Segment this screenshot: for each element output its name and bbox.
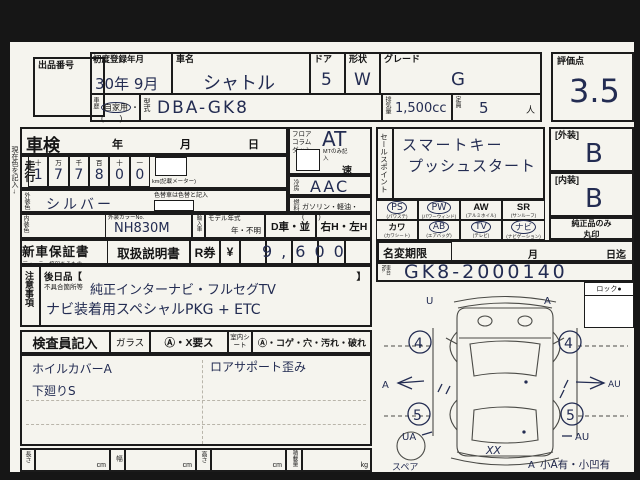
margin-note: 現在色を記入→ <box>11 146 18 195</box>
import-car-label: 輸入車 <box>195 215 201 232</box>
height-value-cell: cm <box>211 448 286 472</box>
digit-header: 千 <box>76 160 83 167</box>
fuel-value: ガソリン・軽油・( ) <box>302 202 370 222</box>
auction-number-label: 出品番号 <box>38 61 74 71</box>
mt-note: MTのみ記入 <box>323 149 349 162</box>
ext-color-row: 外装色 シルバー 色替車は色替と記入 <box>20 189 288 213</box>
shape-label: 形状 <box>349 55 367 65</box>
manual-cell: 取扱説明書 <box>107 239 190 265</box>
mark-left-side: A <box>382 380 389 391</box>
defect-label: 不具合箇所等 <box>44 284 83 291</box>
r-ticket-cell: R券 <box>190 239 220 265</box>
shaken-day-label: 日 <box>248 136 259 152</box>
equip-cell-sr: SR (サンルーフ) <box>502 200 545 220</box>
interior-rating-label: [内装] <box>555 176 579 186</box>
name-change-month: 月 <box>528 246 538 261</box>
load-label: 積載量 <box>291 450 297 467</box>
load-label-cell: 積載量 <box>286 448 302 472</box>
later-goods-close: 】 <box>356 269 366 283</box>
shaken-year-label: 年 <box>112 136 123 152</box>
yen-cell: ¥ <box>220 239 240 265</box>
digit-value: 0 <box>115 167 124 183</box>
equip-cell-ps: PS (パワステ) <box>376 200 418 220</box>
lock-header: ロック● <box>585 283 633 296</box>
lock-label: ロック● <box>596 284 621 294</box>
color-no-value: NH830M <box>114 221 170 236</box>
sales-point-label: セールスポイント <box>380 133 388 193</box>
name-change-label-cell: 名変期限 <box>378 242 452 261</box>
first-registration-label: 初度登録年月 <box>93 55 144 64</box>
length-label: 長さ <box>24 451 30 463</box>
mileage-grid: 十 1 万 7 千 7 百 8 十 0 一 0 <box>28 156 150 187</box>
digit-header: 十 <box>116 160 123 167</box>
equip-code-kawa: カワ <box>388 221 405 233</box>
capacity-cell: 定員 5 人 <box>452 94 542 122</box>
wheel-mark-fl: 4 <box>414 336 423 352</box>
seat-marks-cell: Ⓐ・コゲ・穴・汚れ・破れ <box>252 330 372 354</box>
digit-header: 万 <box>55 160 62 167</box>
mark-rear-bumper: A <box>528 460 535 471</box>
width-label: 幅 <box>114 455 121 462</box>
ac-value: AAC <box>310 177 349 196</box>
height-unit: cm <box>273 462 282 469</box>
mark-front-right: A <box>544 296 551 307</box>
capacity-unit: 人 <box>526 103 535 116</box>
capacity-label: 定員 <box>454 96 460 108</box>
length-label-cell: 長さ <box>20 448 35 472</box>
shape-value: W <box>354 70 371 90</box>
seat-cell: 室内シート <box>228 330 252 354</box>
equip-sub-kawa: (カワシート) <box>384 233 410 239</box>
equip-sub-pw: (パワーウィンド) <box>422 214 457 220</box>
transmission-value: AT <box>322 127 346 151</box>
equip-sub-sr: (サンルーフ) <box>511 213 536 219</box>
ext-color-value: シルバー <box>46 194 114 214</box>
shape-cell: 形状 W <box>345 52 380 94</box>
equip-cell-ab: AB (エアバッグ) <box>418 220 460 240</box>
exterior-rating-box: [外装] B <box>549 127 634 172</box>
equip-code-aw: AW <box>473 202 488 213</box>
mt-speed-box <box>296 149 320 171</box>
equip-cell-pw: PW (パワーウィンド) <box>418 200 460 220</box>
equip-code-sr: SR <box>517 202 530 213</box>
digit-value: 1 <box>34 167 43 183</box>
lock-box: ロック● <box>584 282 634 328</box>
mileage-digit-cell: 万 7 <box>48 156 68 187</box>
equip-sub-ps: (パワステ) <box>387 214 408 220</box>
car-name-cell: 車名 シャトル <box>172 52 310 94</box>
model-year-cell: モデル年式 年・不明 <box>205 213 265 239</box>
color-change-box <box>154 200 194 211</box>
price-value: 9,600 <box>262 242 353 261</box>
digit-header: 十 <box>35 160 42 167</box>
name-change-label: 名変期限 <box>383 245 427 261</box>
history-cell: 車歴 自家用・( ) <box>90 94 140 122</box>
load-unit: kg <box>361 462 368 469</box>
digit-value: 7 <box>74 167 83 183</box>
grade-label: グレード <box>384 55 420 65</box>
sales-line1: スマートキー <box>402 134 504 155</box>
model-year-value: 年・不明 <box>231 225 261 236</box>
ruled-line <box>26 424 366 425</box>
import-car-cell: 輸入車 <box>192 213 205 239</box>
mark-bottom-center: XX <box>485 444 502 457</box>
shaken-month-label: 月 <box>180 136 191 152</box>
width-unit: cm <box>183 462 192 469</box>
displacement-label: 排気量 <box>384 96 390 114</box>
history-label: 車歴 <box>92 97 98 109</box>
equip-cell-navi: ナビ (ナビゲーション) <box>502 220 545 240</box>
mark-rear-left: UA <box>402 432 416 443</box>
interior-rating-box: [内装] B <box>549 172 634 217</box>
door-label: ドア <box>314 55 332 65</box>
digit-value: 7 <box>54 167 63 183</box>
name-change-until: 日迄 <box>606 246 626 261</box>
ruled-line <box>26 400 366 401</box>
chassis-row: 車台No. GK8-2000140 <box>376 262 634 282</box>
mileage-blank-box <box>155 157 187 176</box>
auction-sheet-photo: 現在色を記入→ 出品番号 初度登録年月 30年 9月 車名 シャトル ドア 5 … <box>0 0 640 480</box>
equip-sub-ab: (エアバッグ) <box>426 233 451 239</box>
diagram-summary: 小A有・小凹有 <box>540 457 610 472</box>
sales-divider <box>392 129 394 199</box>
digit-header: 百 <box>96 160 103 167</box>
exterior-rating-label: [外装] <box>555 131 579 141</box>
history-value: 自家用 <box>101 102 131 113</box>
wheel-mark-fr: 4 <box>564 336 573 352</box>
manual-label: 取扱説明書 <box>117 243 180 262</box>
mileage-unit-note: km(記載メーター) <box>152 179 196 185</box>
fuel-box: 燃料 ガソリン・軽油・( ) <box>288 196 372 213</box>
width-value-cell: cm <box>125 448 196 472</box>
grade-cell: グレード G <box>380 52 542 94</box>
glass-label: ガラス <box>116 335 144 349</box>
sales-line2: プッシュスタート <box>408 155 536 176</box>
glass-marks: Ⓐ・X要ス <box>164 335 213 350</box>
spare-label: スペア <box>392 463 418 472</box>
digit-header: 一 <box>137 160 144 167</box>
genuine-note-line1: 純正品のみ <box>572 218 612 229</box>
equip-cell-tv: TV (テレビ) <box>460 220 502 240</box>
transmission-box: フロア コラム ダッシュ AT MTのみ記入 速 <box>288 127 372 175</box>
chassis-value: GK8-2000140 <box>404 261 568 283</box>
mileage-digit-cell: 千 7 <box>69 156 89 187</box>
notes-label: 注意事項 <box>24 271 33 307</box>
height-label-cell: 高さ <box>196 448 211 472</box>
door-cell: ドア 5 <box>310 52 345 94</box>
notes-row: 注意事項 後日品【 】 不具合箇所等 純正インターナビ・フルセグTV ナビ装着用… <box>20 265 372 327</box>
glass-marks-cell: Ⓐ・X要ス <box>150 330 228 354</box>
warranty-booklet-label: 新車保証書 <box>22 241 107 260</box>
model-code-label: 型式 <box>143 98 150 112</box>
first-registration-value: 30年 9月 <box>95 73 158 94</box>
exterior-rating-value: B <box>585 139 603 169</box>
wheel-mark-rr: 5 <box>566 408 575 424</box>
length-value-cell: cm <box>35 448 110 472</box>
equip-sub-tv: (テレビ) <box>473 233 490 239</box>
floor-label: フロア <box>292 131 312 138</box>
inspector-note1: ホイルカバーA <box>32 360 112 377</box>
car-name-label: 車名 <box>176 55 194 65</box>
history-value-wrap: 自家用・( ) <box>101 102 139 124</box>
load-value-cell: kg <box>302 448 372 472</box>
warranty-booklet-cell: 新車保証書 ディーラー捺印あるもの <box>22 241 107 268</box>
model-code-cell: 型式 DBA-GK8 <box>140 94 382 122</box>
inspector-notes-area: ホイルカバーA 下廻りS ロアサポート歪み <box>20 354 372 446</box>
grade-value: G <box>451 69 465 90</box>
yen-label: ¥ <box>227 245 234 259</box>
capacity-value: 5 <box>479 99 489 117</box>
int-color-label: 内装色 <box>22 215 28 233</box>
score-value: 3.5 <box>569 72 620 110</box>
chassis-label: 車台No. <box>380 265 390 280</box>
notes-line1: 純正インターナビ・フルセグTV <box>90 279 276 298</box>
mark-rear-right: AU <box>575 432 589 443</box>
score-label: 評価点 <box>557 57 584 67</box>
genuine-note-line2: 丸印 <box>584 229 600 240</box>
genuine-parts-box: 純正品のみ 丸印 <box>549 217 634 240</box>
equip-cell-kawa: カワ (カワシート) <box>376 220 418 240</box>
car-name-value: シャトル <box>203 69 275 95</box>
inspector-title-cell: 検査員記入 <box>20 330 110 354</box>
color-no-cell: 外装カラーNo. NH830M <box>105 213 192 239</box>
shaken-label: 車検 <box>26 131 60 156</box>
inspector-title: 検査員記入 <box>32 333 97 352</box>
mileage-digit-cell: 十 1 <box>28 156 48 187</box>
width-label-cell: 幅 <box>110 448 125 472</box>
inspector-note3: ロアサポート歪み <box>210 358 306 375</box>
mileage-digit-cell: 百 8 <box>89 156 109 187</box>
sales-point-box: セールスポイント スマートキー プッシュスタート <box>376 127 545 200</box>
height-label: 高さ <box>200 451 206 463</box>
glass-cell: ガラス <box>110 330 150 354</box>
seat-marks: Ⓐ・コゲ・穴・汚れ・破れ <box>258 336 366 349</box>
interior-rating-value: B <box>585 184 603 214</box>
equip-code-pw: PW <box>427 201 450 214</box>
ext-color-label: 外装色 <box>23 192 29 210</box>
mileage-digit-cell: 十 0 <box>109 156 129 187</box>
length-unit: cm <box>97 462 106 469</box>
notes-divider <box>39 267 41 326</box>
equip-code-ab: AB <box>429 221 449 233</box>
digit-value: 8 <box>95 167 104 183</box>
digit-value: 0 <box>135 167 144 183</box>
color-change-note: 色替車は色替と記入 <box>154 193 208 200</box>
column-label: コラム <box>292 139 311 146</box>
equip-sub-aw: (アルミホイル) <box>466 213 496 219</box>
displacement-cell: 排気量 1,500cc <box>382 94 452 122</box>
model-year-label: モデル年式 <box>208 215 241 222</box>
inspector-note2: 下廻りS <box>32 382 76 399</box>
fuel-label: 燃料 <box>292 199 298 211</box>
notes-line2: ナビ装着用スペシャルPKG + ETC <box>46 299 260 319</box>
seat-label: 室内シート <box>229 334 251 350</box>
wheel-mark-rl: 5 <box>413 408 422 424</box>
later-goods-label: 後日品【 <box>44 269 82 283</box>
ac-label: 冷房 <box>292 179 298 191</box>
mark-right-side: AU <box>608 380 621 390</box>
ac-box: 冷房 AAC <box>288 175 372 196</box>
ruled-divider <box>202 360 203 444</box>
equip-cell-aw: AW (アルミホイル) <box>460 200 502 220</box>
equip-code-tv: TV <box>471 221 491 233</box>
displacement-value: 1,500cc <box>395 101 447 116</box>
equip-code-ps: PS <box>387 201 407 214</box>
first-registration-cell: 初度登録年月 30年 9月 <box>90 52 172 94</box>
mark-front-left: U <box>426 296 433 307</box>
equip-code-navi: ナビ <box>511 220 536 234</box>
score-box: 評価点 3.5 <box>551 52 634 122</box>
r-ticket-label: R券 <box>195 244 216 261</box>
door-value: 5 <box>321 70 332 90</box>
mileage-digit-cell: 一 0 <box>130 156 150 187</box>
shaken-row: 車検 年 月 日 <box>20 127 288 155</box>
name-change-row: 名変期限 月 日迄 <box>376 240 634 262</box>
model-code-value: DBA-GK8 <box>157 98 249 118</box>
